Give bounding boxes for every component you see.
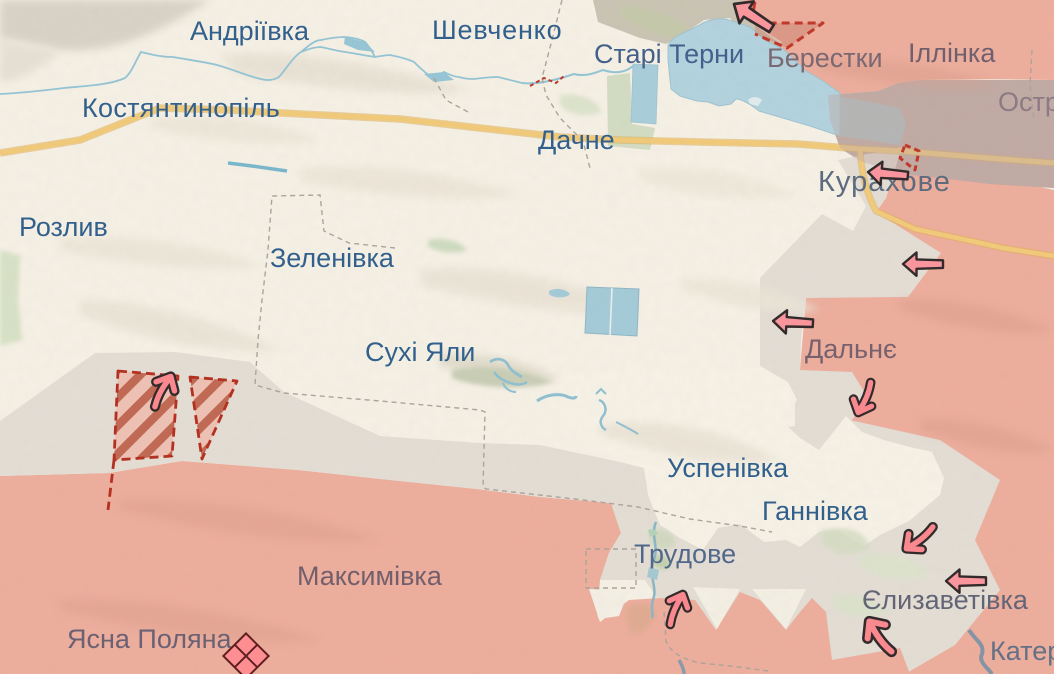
svg-text:Іллінка: Іллінка	[908, 38, 996, 68]
svg-text:Розлив: Розлив	[19, 212, 108, 242]
svg-text:Максимівка: Максимівка	[297, 561, 443, 591]
svg-text:Костянтинопіль: Костянтинопіль	[82, 93, 280, 123]
svg-text:Дальнє: Дальнє	[805, 334, 897, 364]
svg-text:Катер: Катер	[990, 636, 1054, 666]
svg-text:Сухі Яли: Сухі Яли	[365, 337, 475, 367]
svg-text:Ганнівка: Ганнівка	[762, 496, 869, 526]
svg-text:Зеленівка: Зеленівка	[270, 243, 395, 273]
svg-text:Дачне: Дачне	[538, 125, 615, 155]
svg-text:Успенівка: Успенівка	[667, 453, 789, 483]
svg-text:Шевченко: Шевченко	[432, 15, 562, 45]
svg-text:Андріївка: Андріївка	[190, 16, 310, 46]
svg-text:Берестки: Берестки	[767, 43, 883, 73]
svg-text:Трудове: Трудове	[634, 539, 736, 569]
svg-text:Остр: Остр	[998, 87, 1054, 117]
svg-text:Єлизаветівка: Єлизаветівка	[862, 585, 1029, 615]
svg-text:Старі Терни: Старі Терни	[594, 39, 744, 69]
svg-text:Ясна Поляна: Ясна Поляна	[67, 624, 233, 654]
